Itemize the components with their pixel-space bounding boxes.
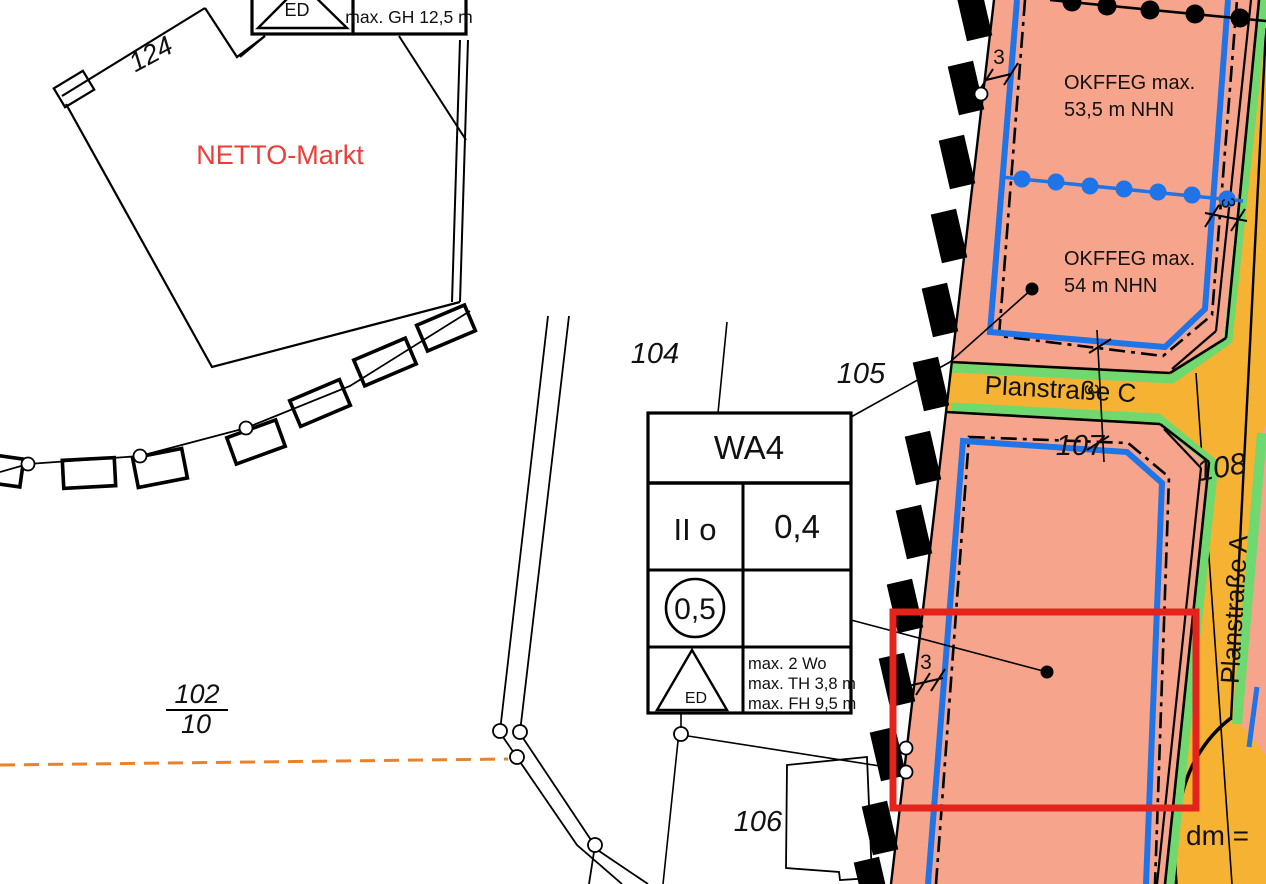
strip-block: [905, 431, 942, 486]
orange-boundary-dashed-line: [0, 759, 508, 765]
netto-nw-edge: [62, 8, 205, 96]
strip-block: [879, 653, 916, 708]
netto-east-double-line: [452, 40, 468, 302]
netto-markt-label: NETTO-Markt: [196, 140, 364, 170]
strip-block: [956, 0, 993, 41]
garage-box: [290, 380, 351, 427]
survey-point: [674, 727, 688, 741]
wa4-zone-label: WA4: [714, 429, 784, 466]
garage-row-baseline: [0, 311, 470, 472]
survey-point: [513, 725, 527, 739]
garage-box: [0, 453, 24, 487]
parcel-label-107: 107: [1056, 430, 1106, 462]
plan-canvas: 3 3 3 3 OKFFEG max. 53,5 m NHN OKFFEG ma…: [0, 0, 1266, 884]
wa4-storeys-label: II o: [673, 512, 716, 547]
top-schablone-leader-left: [240, 36, 265, 57]
lower-plot-point: [1041, 666, 1054, 679]
wa4-note-1: max. 2 Wo: [748, 655, 827, 673]
survey-point: [900, 766, 913, 779]
parcel-double-line-diagonal: [503, 737, 648, 884]
leader-104: [718, 322, 727, 413]
parcel-double-line-vertical: [500, 316, 569, 732]
survey-point: [900, 742, 913, 755]
parcel-label-102-10: 102 10: [166, 679, 228, 739]
garage-box: [227, 420, 285, 464]
okffeg-lower-label-line1: OKFFEG max.: [1064, 248, 1195, 270]
parcel-label-105: 105: [837, 358, 886, 390]
schablone-leaders: [663, 713, 899, 884]
survey-point: [134, 450, 147, 463]
okffeg-upper-label-line1: OKFFEG max.: [1064, 72, 1195, 94]
garage-box: [354, 338, 416, 386]
netto-building-outline: [54, 0, 468, 367]
okffeg-lower-label-line2: 54 m NHN: [1064, 275, 1157, 297]
wa4-note-2: max. TH 3,8 m: [748, 675, 856, 693]
parcel-102-numerator: 102: [174, 679, 219, 709]
wa4-gfz-value: 0,5: [674, 593, 716, 626]
ed-label: ED: [284, 0, 309, 20]
wa4-grz-value: 0,4: [774, 508, 820, 545]
survey-point: [493, 724, 507, 738]
survey-point: [588, 838, 602, 852]
survey-point: [510, 750, 524, 764]
upper-plot-point: [1026, 283, 1039, 296]
parcel-label-106: 106: [734, 806, 783, 838]
parcel-102-denominator: 10: [181, 709, 211, 739]
survey-point: [240, 422, 253, 435]
turning-circle-diameter-label: dm =: [1186, 820, 1249, 851]
garage-box: [62, 458, 115, 489]
schablone-wa4-box: WA4 II o 0,4 0,5 ED max. 2 Wo max. TH 3,…: [648, 413, 856, 713]
strip-block: [931, 209, 968, 264]
top-schablone-leader-right: [399, 36, 466, 140]
schablone-top-box: ED max. GH 12,5 m: [240, 0, 473, 57]
strip-block: [922, 283, 959, 338]
parcel-label-104: 104: [631, 338, 679, 370]
max-gh-label: max. GH 12,5 m: [345, 7, 472, 27]
ed-label: ED: [685, 690, 707, 707]
dimension-label: 3: [920, 651, 932, 674]
bebauungsplan-map: 3 3 3 3 OKFFEG max. 53,5 m NHN OKFFEG ma…: [0, 0, 1266, 884]
strip-block: [939, 135, 976, 190]
survey-point: [975, 88, 988, 101]
dimension-label: 3: [993, 46, 1005, 69]
wa4-note-3: max. FH 9,5 m: [748, 695, 856, 713]
garage-row: [0, 305, 475, 488]
strip-block: [896, 505, 933, 560]
okffeg-upper-label-line2: 53,5 m NHN: [1064, 99, 1174, 121]
survey-point: [22, 458, 35, 471]
